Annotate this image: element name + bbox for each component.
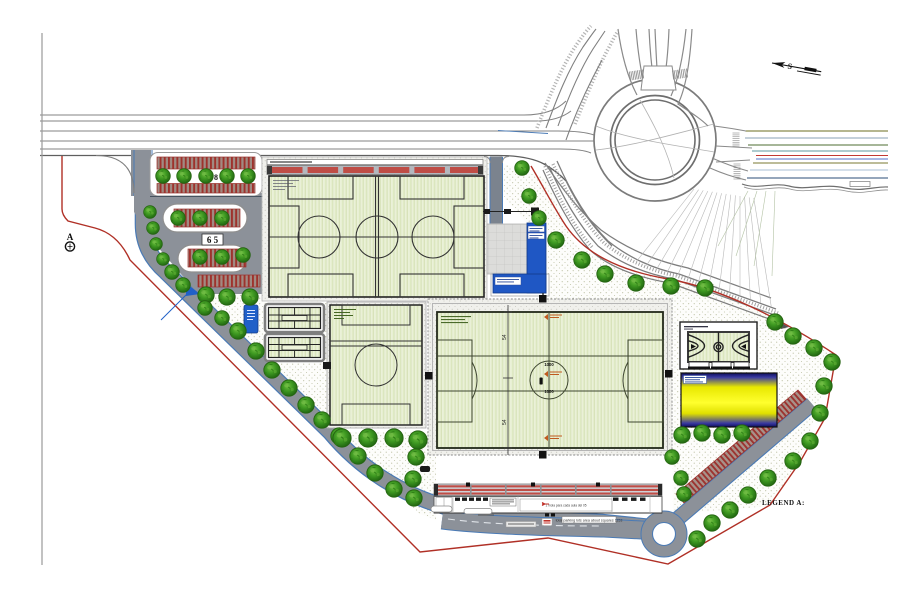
svg-text:A: A (67, 232, 74, 242)
svg-text:1000: 1000 (544, 389, 554, 394)
svg-text:total parking lots area about: total parking lots area about squares 11… (556, 519, 623, 523)
svg-text:54: 54 (502, 334, 508, 340)
svg-text:54: 54 (502, 419, 508, 425)
svg-text:LEGEND A:: LEGEND A: (762, 499, 805, 507)
svg-text:6 5: 6 5 (207, 235, 219, 245)
svg-text:1 mola para cada aula del 05: 1 mola para cada aula del 05 (545, 504, 586, 508)
svg-text:1000: 1000 (544, 362, 554, 367)
svg-text:8: 8 (214, 173, 218, 182)
